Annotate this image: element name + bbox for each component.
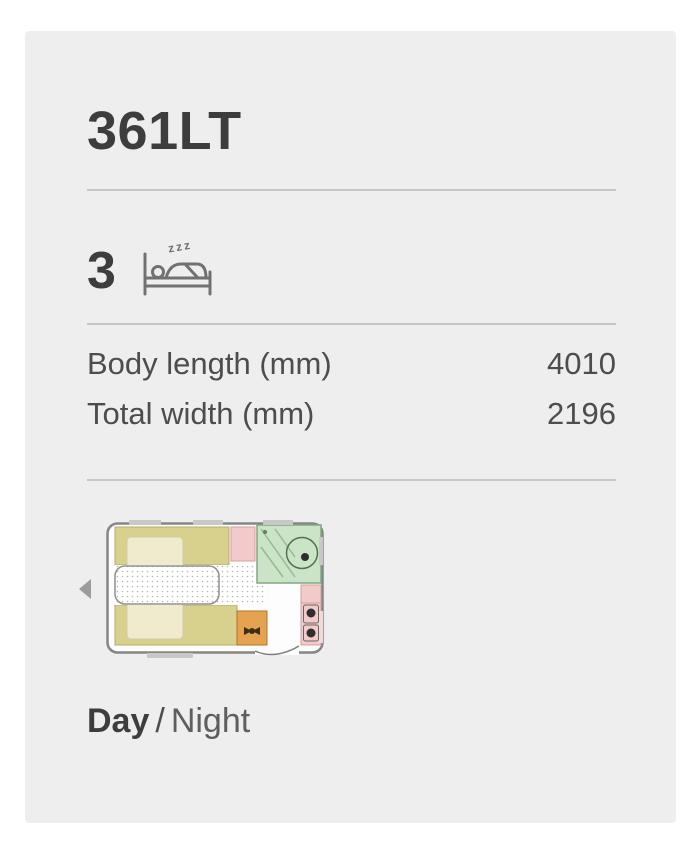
- hob-burner: [307, 629, 316, 638]
- bed-sleeper-icon: zzz: [138, 237, 218, 301]
- spec-table: Body length (mm) 4010 Total width (mm) 2…: [87, 339, 616, 439]
- table-row: Total width (mm) 2196: [87, 389, 616, 439]
- view-toggle-day[interactable]: Day: [87, 702, 149, 740]
- prev-arrow-icon[interactable]: [79, 579, 91, 599]
- model-title: 361LT: [87, 103, 616, 159]
- basin-drain: [301, 553, 309, 561]
- berths-row: 3 zzz: [87, 235, 616, 301]
- divider: [87, 323, 616, 325]
- kitchen-unit: [301, 585, 321, 645]
- model-card: 361LT 3 zzz Body length (mm) 4010 Total …: [25, 31, 676, 823]
- spec-value: 4010: [547, 339, 616, 389]
- shower-head: [263, 530, 267, 534]
- view-toggle-separator: /: [149, 702, 170, 740]
- heater-cabinet: [237, 611, 267, 645]
- divider: [87, 479, 616, 481]
- zzz-glyph: zzz: [167, 238, 193, 256]
- divider: [87, 189, 616, 191]
- berth-count: 3: [87, 241, 116, 301]
- floorplan-carousel: [79, 519, 616, 659]
- washroom: [257, 525, 321, 583]
- view-toggle-night[interactable]: Night: [171, 702, 250, 740]
- blanket-fold: [185, 264, 198, 278]
- spec-value: 2196: [547, 389, 616, 439]
- spec-label: Total width (mm): [87, 389, 314, 439]
- bed-area: [115, 566, 219, 604]
- door-side-strip: [319, 611, 323, 643]
- spec-label: Body length (mm): [87, 339, 332, 389]
- wardrobe: [231, 527, 255, 561]
- view-toggle: Day/Night: [87, 699, 616, 743]
- floorplan-thumbnail[interactable]: [105, 519, 335, 659]
- sleeper-head: [152, 267, 163, 278]
- sink-bowl: [307, 609, 316, 618]
- table-row: Body length (mm) 4010: [87, 339, 616, 389]
